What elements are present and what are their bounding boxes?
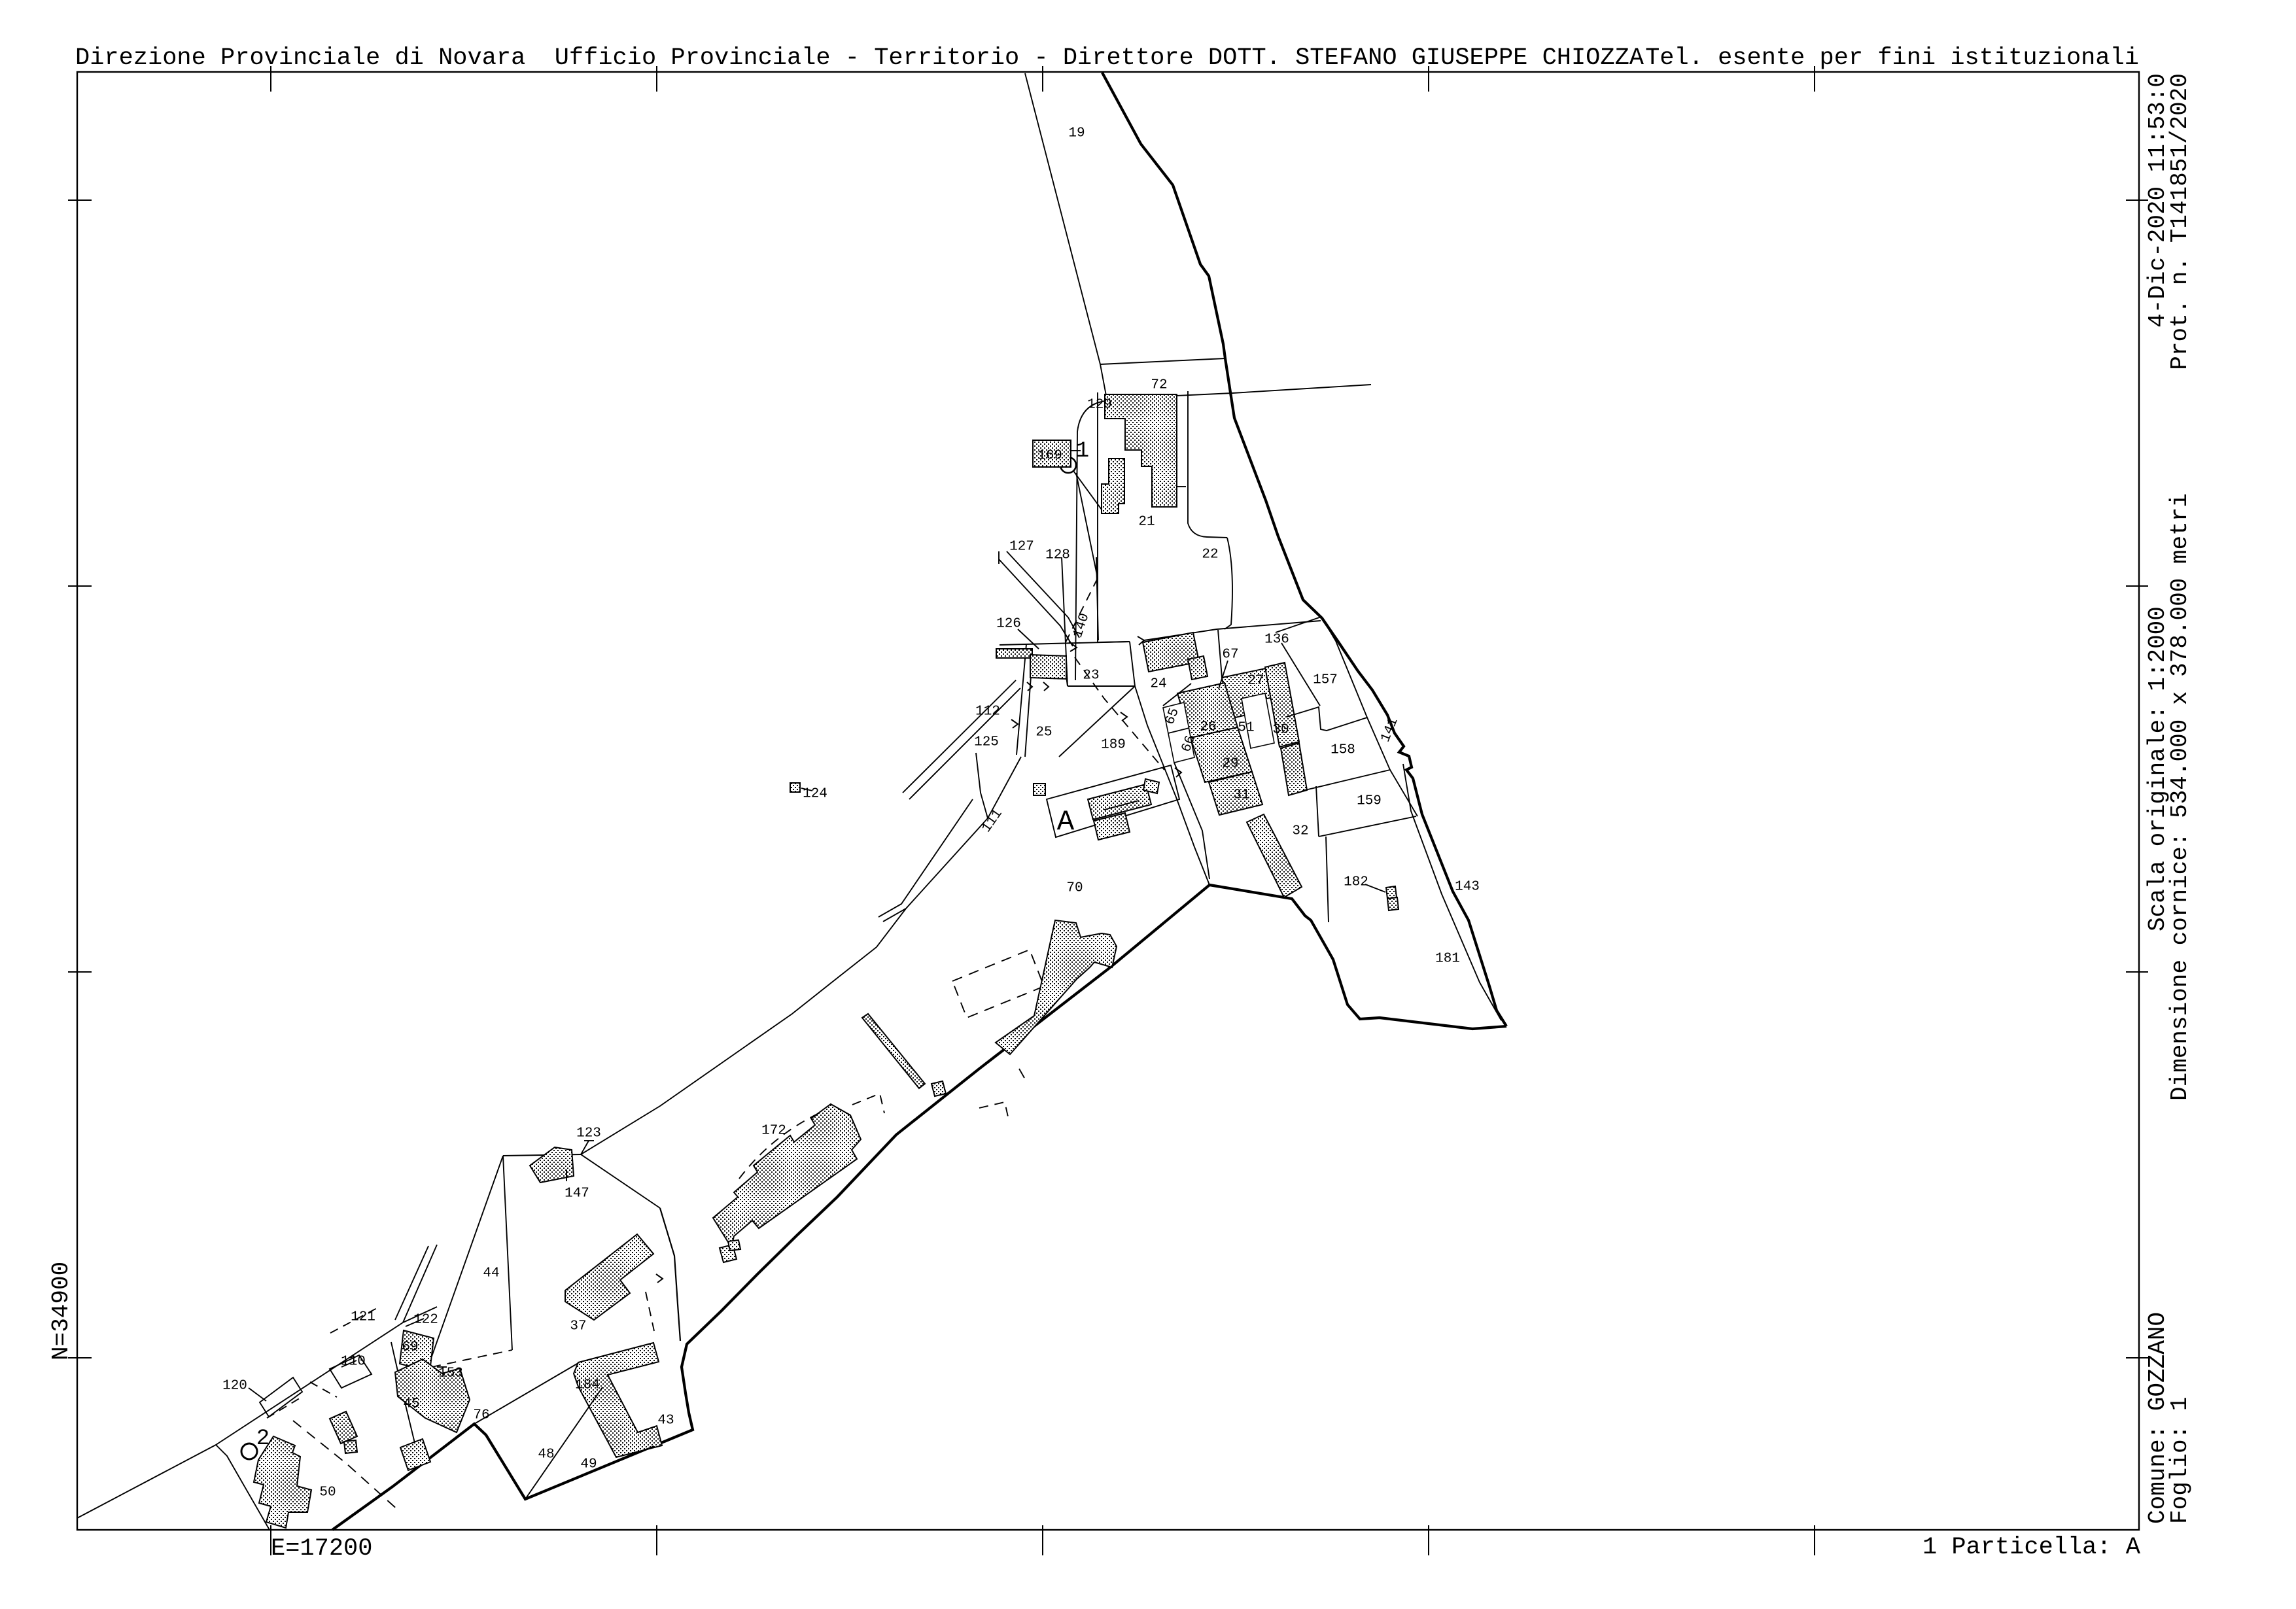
svg-text:25: 25 (1035, 725, 1052, 740)
svg-text:N=34900: N=34900 (48, 1262, 75, 1360)
svg-text:126: 126 (996, 616, 1021, 631)
svg-text:Foglio: 1: Foglio: 1 (2166, 1397, 2193, 1524)
svg-text:147: 147 (565, 1186, 589, 1201)
svg-text:121: 121 (351, 1309, 375, 1324)
svg-text:129: 129 (1087, 397, 1112, 412)
svg-text:184: 184 (575, 1377, 600, 1393)
svg-text:43: 43 (657, 1413, 674, 1428)
svg-text:Dimensione cornice: 534.000 x: Dimensione cornice: 534.000 x 378.000 me… (2166, 493, 2193, 1101)
svg-text:67: 67 (1222, 647, 1238, 662)
svg-text:Direzione Provinciale di Novar: Direzione Provinciale di Novara Ufficio … (75, 44, 1644, 72)
svg-text:51: 51 (1238, 720, 1254, 735)
svg-text:22: 22 (1202, 547, 1218, 562)
svg-text:50: 50 (319, 1485, 336, 1500)
svg-text:123: 123 (576, 1126, 601, 1141)
svg-text:128: 128 (1045, 547, 1070, 562)
svg-text:169: 169 (1037, 448, 1062, 463)
svg-text:32: 32 (1292, 823, 1308, 839)
svg-text:157: 157 (1313, 672, 1338, 687)
svg-text:189: 189 (1101, 737, 1126, 752)
svg-text:48: 48 (538, 1447, 554, 1462)
svg-text:181: 181 (1435, 951, 1460, 966)
svg-text:122: 122 (413, 1312, 438, 1327)
svg-text:Tel. esente per fini istituzio: Tel. esente per fini istituzionali (1645, 44, 2139, 72)
svg-text:29: 29 (1222, 756, 1238, 771)
svg-text:31: 31 (1233, 787, 1249, 803)
svg-text:E=17200: E=17200 (271, 1535, 372, 1563)
svg-text:125: 125 (974, 735, 999, 750)
svg-text:2: 2 (256, 1427, 270, 1451)
svg-text:49: 49 (580, 1457, 597, 1472)
svg-text:30: 30 (1272, 722, 1289, 737)
svg-text:136: 136 (1264, 632, 1289, 647)
svg-text:158: 158 (1331, 742, 1355, 757)
svg-text:1: 1 (1076, 439, 1089, 464)
svg-text:27: 27 (1247, 673, 1264, 688)
svg-text:172: 172 (761, 1123, 786, 1138)
svg-text:A: A (1057, 806, 1075, 839)
svg-text:159: 159 (1357, 793, 1382, 808)
svg-text:143: 143 (1455, 879, 1480, 894)
svg-text:124: 124 (803, 786, 827, 801)
svg-text:1 Particella: A: 1 Particella: A (1922, 1534, 2141, 1561)
svg-text:Prot. n. T141851/2020: Prot. n. T141851/2020 (2166, 73, 2193, 370)
svg-text:37: 37 (570, 1319, 586, 1334)
svg-text:44: 44 (483, 1266, 499, 1281)
svg-text:182: 182 (1344, 874, 1368, 890)
svg-text:69: 69 (402, 1340, 418, 1355)
svg-text:23: 23 (1083, 668, 1099, 683)
svg-text:72: 72 (1151, 377, 1167, 392)
svg-text:24: 24 (1150, 676, 1166, 691)
svg-text:112: 112 (975, 704, 1000, 719)
svg-text:45: 45 (403, 1396, 419, 1411)
svg-text:70: 70 (1066, 880, 1083, 895)
svg-text:127: 127 (1009, 539, 1034, 554)
svg-text:120: 120 (222, 1378, 247, 1393)
svg-text:76: 76 (473, 1408, 489, 1423)
svg-text:26: 26 (1200, 719, 1216, 735)
svg-text:110: 110 (341, 1354, 366, 1369)
svg-text:21: 21 (1138, 514, 1155, 529)
svg-text:153: 153 (438, 1366, 463, 1381)
svg-text:19: 19 (1068, 126, 1085, 141)
